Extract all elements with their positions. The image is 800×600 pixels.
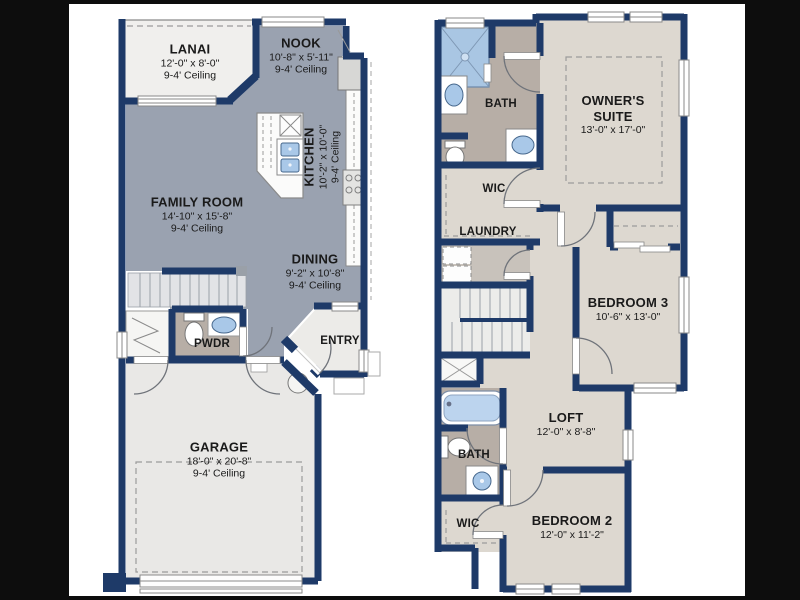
room-name: WIC xyxy=(483,183,506,197)
label-garage: GARAGE 18'-0" x 20'-8" 9-4' Ceiling xyxy=(187,440,252,481)
label-loft: LOFT 12'-0" x 8'-8" xyxy=(537,410,596,438)
room-name: FAMILY ROOM xyxy=(151,195,244,211)
stair-newel xyxy=(236,266,247,276)
room-name: BATH xyxy=(485,98,517,112)
room-dims: 9'-2" x 10'-8" xyxy=(286,267,345,280)
label-pwdr: PWDR xyxy=(194,338,230,352)
label-wic1: WIC xyxy=(483,183,506,197)
room-name: OWNER'S SUITE xyxy=(569,93,657,124)
garage-door xyxy=(140,575,302,593)
room-dims: 12'-0" x 8'-0" xyxy=(161,57,220,70)
room-ceiling: 9-4' Ceiling xyxy=(269,64,333,77)
label-bath2: BATH xyxy=(458,449,490,463)
window-bedroom3-right xyxy=(679,277,689,333)
room-name: ENTRY xyxy=(320,335,360,349)
floorplan-drawing xyxy=(0,0,800,600)
room-name: LOFT xyxy=(537,410,596,426)
window-bedroom3-bottom xyxy=(634,383,676,393)
room-dims: 13'-0" x 17'-0" xyxy=(569,124,657,137)
stove-icon xyxy=(343,170,363,205)
label-lanai: LANAI 12'-0" x 8'-0" 9-4' Ceiling xyxy=(161,42,220,83)
room-dims: 10'-2" x 10'-0" xyxy=(317,125,330,190)
room-dims: 14'-10" x 15'-8" xyxy=(151,210,244,223)
label-nook: NOOK 10'-8" x 5'-11" 9-4' Ceiling xyxy=(269,36,333,77)
room-name: GARAGE xyxy=(187,440,252,456)
label-bath1: BATH xyxy=(485,98,517,112)
room-ceiling: 9-4' Ceiling xyxy=(330,125,343,190)
label-kitchen: KITCHEN 10'-2" x 10'-0" 9-4' Ceiling xyxy=(302,125,343,190)
room-name: PWDR xyxy=(194,338,230,352)
window-suite-top-2 xyxy=(630,12,662,22)
window-entry-top xyxy=(332,302,358,311)
room-name: LAUNDRY xyxy=(459,226,516,240)
garage-step xyxy=(251,363,267,372)
window-bedroom2-bottom-2 xyxy=(552,584,580,594)
label-wic2: WIC xyxy=(457,518,480,532)
room-dims: 10'-8" x 5'-11" xyxy=(269,51,333,64)
tub-icon xyxy=(440,391,504,425)
refrigerator-icon xyxy=(338,57,361,90)
room-ceiling: 9-4' Ceiling xyxy=(151,223,244,236)
room-name: WIC xyxy=(457,518,480,532)
first-floor-plan xyxy=(103,17,380,593)
kitchen-sink-icon xyxy=(277,139,303,175)
room-dims: 12'-0" x 8'-8" xyxy=(537,426,596,439)
window-stair-landing xyxy=(117,332,127,358)
room-ceiling: 9-4' Ceiling xyxy=(187,468,252,481)
room-name: DINING xyxy=(286,252,345,268)
label-entry: ENTRY xyxy=(320,335,360,349)
room-name: NOOK xyxy=(269,36,333,52)
window-suite-top-1 xyxy=(588,12,624,22)
bath1-vanity-icon xyxy=(441,76,467,114)
room-name: KITCHEN xyxy=(302,125,318,190)
room-dims: 18'-0" x 20'-8" xyxy=(187,455,252,468)
window-loft-right xyxy=(623,430,633,460)
label-dining: DINING 9'-2" x 10'-8" 9-4' Ceiling xyxy=(286,252,345,293)
window-nook xyxy=(262,17,324,27)
room-ceiling: 9-4' Ceiling xyxy=(286,280,345,293)
window-bedroom2-bottom-1 xyxy=(516,584,544,594)
room-ceiling: 9-4' Ceiling xyxy=(161,70,220,83)
label-bedroom2: BEDROOM 2 12'-0" x 11'-2" xyxy=(532,513,613,541)
room-dims: 12'-0" x 11'-2" xyxy=(532,529,613,542)
room-name: BATH xyxy=(458,449,490,463)
corner-block xyxy=(103,573,126,592)
floorplan-screenshot: LANAI 12'-0" x 8'-0" 9-4' Ceiling NOOK 1… xyxy=(0,0,800,600)
pwdr-sink-icon xyxy=(208,313,241,336)
bath1-vanity2-icon xyxy=(506,129,540,162)
room-name: BEDROOM 2 xyxy=(532,513,613,529)
room-dims: 10'-6" x 13'-0" xyxy=(588,311,669,324)
window-lanai-slider xyxy=(138,96,216,106)
entry-side-stoop xyxy=(368,352,380,376)
entry-stoop xyxy=(334,378,364,394)
label-laundry: LAUNDRY xyxy=(459,226,516,240)
label-owners-suite: OWNER'S SUITE 13'-0" x 17'-0" xyxy=(569,93,657,137)
label-bedroom3: BEDROOM 3 10'-6" x 13'-0" xyxy=(588,295,669,323)
room-name: LANAI xyxy=(161,42,220,58)
label-family-room: FAMILY ROOM 14'-10" x 15'-8" 9-4' Ceilin… xyxy=(151,195,244,236)
window-bath1-top xyxy=(446,18,484,28)
bath2-vanity-icon xyxy=(466,466,498,495)
linen-closet-icon xyxy=(441,358,478,382)
room-name: BEDROOM 3 xyxy=(588,295,669,311)
window-suite-right xyxy=(679,60,689,116)
